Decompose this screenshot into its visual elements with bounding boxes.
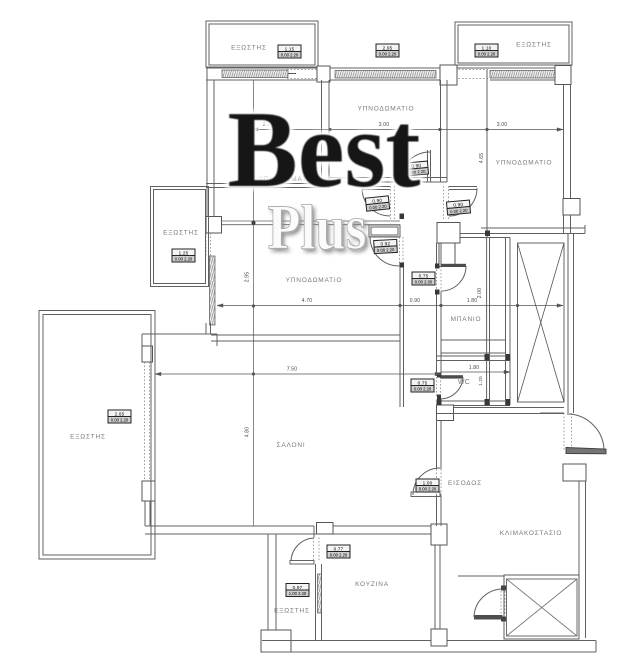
- svg-text:ΥΠΝΟΔΩΜΑΤΙΟ: ΥΠΝΟΔΩΜΑΤΙΟ: [286, 277, 343, 284]
- svg-text:2.65: 2.65: [115, 411, 125, 416]
- svg-text:ΣΑΛΟΝΙ: ΣΑΛΟΝΙ: [277, 442, 306, 449]
- svg-text:1.80: 1.80: [469, 365, 480, 371]
- svg-text:ΕΞΩΣΤΗΣ: ΕΞΩΣΤΗΣ: [516, 42, 552, 49]
- svg-text:ΕΞΩΣΤΗΣ: ΕΞΩΣΤΗΣ: [163, 230, 199, 237]
- svg-text:ΕΞΩΣΤΗΣ: ΕΞΩΣΤΗΣ: [231, 45, 267, 52]
- svg-text:0.00 2.20: 0.00 2.20: [175, 257, 193, 262]
- svg-text:ΜΠΑΝΙΟ: ΜΠΑΝΙΟ: [451, 316, 482, 323]
- svg-text:ΕΞΩΣΤΗΣ: ΕΞΩΣΤΗΣ: [70, 434, 106, 441]
- svg-text:0.92: 0.92: [380, 241, 390, 247]
- svg-text:0.97: 0.97: [293, 585, 303, 590]
- svg-text:4.80: 4.80: [245, 427, 251, 438]
- svg-text:0.00 2.20: 0.00 2.20: [419, 487, 437, 492]
- svg-text:0.00 2.20: 0.00 2.20: [478, 52, 496, 57]
- svg-text:0.75: 0.75: [419, 273, 429, 278]
- svg-text:1.10: 1.10: [482, 45, 492, 50]
- svg-text:1.00 2.20: 1.00 2.20: [289, 591, 307, 596]
- svg-text:7.50: 7.50: [287, 367, 298, 373]
- svg-text:4.70: 4.70: [302, 298, 313, 304]
- svg-text:ΕΞΩΣΤΗΣ: ΕΞΩΣΤΗΣ: [274, 608, 310, 615]
- svg-text:4.65: 4.65: [479, 153, 485, 164]
- svg-text:0.00 2.20: 0.00 2.20: [377, 247, 395, 253]
- svg-text:2.00: 2.00: [477, 288, 483, 299]
- svg-text:1.00: 1.00: [423, 480, 433, 485]
- svg-text:1.25: 1.25: [179, 250, 189, 255]
- svg-text:2.95: 2.95: [245, 272, 251, 283]
- svg-text:ΚΟΥΖΙΝΑ: ΚΟΥΖΙΝΑ: [355, 581, 389, 588]
- svg-text:3.00: 3.00: [497, 122, 508, 128]
- svg-text:2.95: 2.95: [383, 45, 393, 50]
- svg-text:0.75: 0.75: [418, 380, 428, 385]
- svg-text:ΥΠΝΟΔΩΜΑΤΙΟ: ΥΠΝΟΔΩΜΑΤΙΟ: [496, 160, 553, 167]
- svg-text:ΕΙΣΟΔΟΣ: ΕΙΣΟΔΟΣ: [448, 480, 482, 487]
- svg-text:0.00 2.20: 0.00 2.20: [379, 52, 397, 57]
- svg-text:1.15: 1.15: [285, 46, 295, 51]
- svg-text:0.00 2.20: 0.00 2.20: [281, 53, 299, 58]
- svg-text:0.00 2.20: 0.00 2.20: [111, 418, 129, 423]
- svg-text:ΚΛΙΜΑΚΟΣΤΑΣΙΟ: ΚΛΙΜΑΚΟΣΤΑΣΙΟ: [500, 530, 563, 537]
- svg-text:0.90: 0.90: [410, 298, 421, 304]
- svg-text:Plus: Plus: [268, 192, 367, 263]
- svg-text:WC: WC: [458, 379, 470, 386]
- svg-text:1.20: 1.20: [478, 376, 483, 386]
- svg-text:1.80: 1.80: [467, 298, 478, 304]
- svg-text:0.00 2.00: 0.00 2.00: [415, 280, 433, 285]
- svg-text:0.90: 0.90: [453, 202, 463, 208]
- svg-text:0.77: 0.77: [334, 546, 344, 551]
- svg-text:0.00 2.20: 0.00 2.20: [330, 553, 348, 558]
- svg-text:0.00 2.20: 0.00 2.20: [414, 387, 432, 392]
